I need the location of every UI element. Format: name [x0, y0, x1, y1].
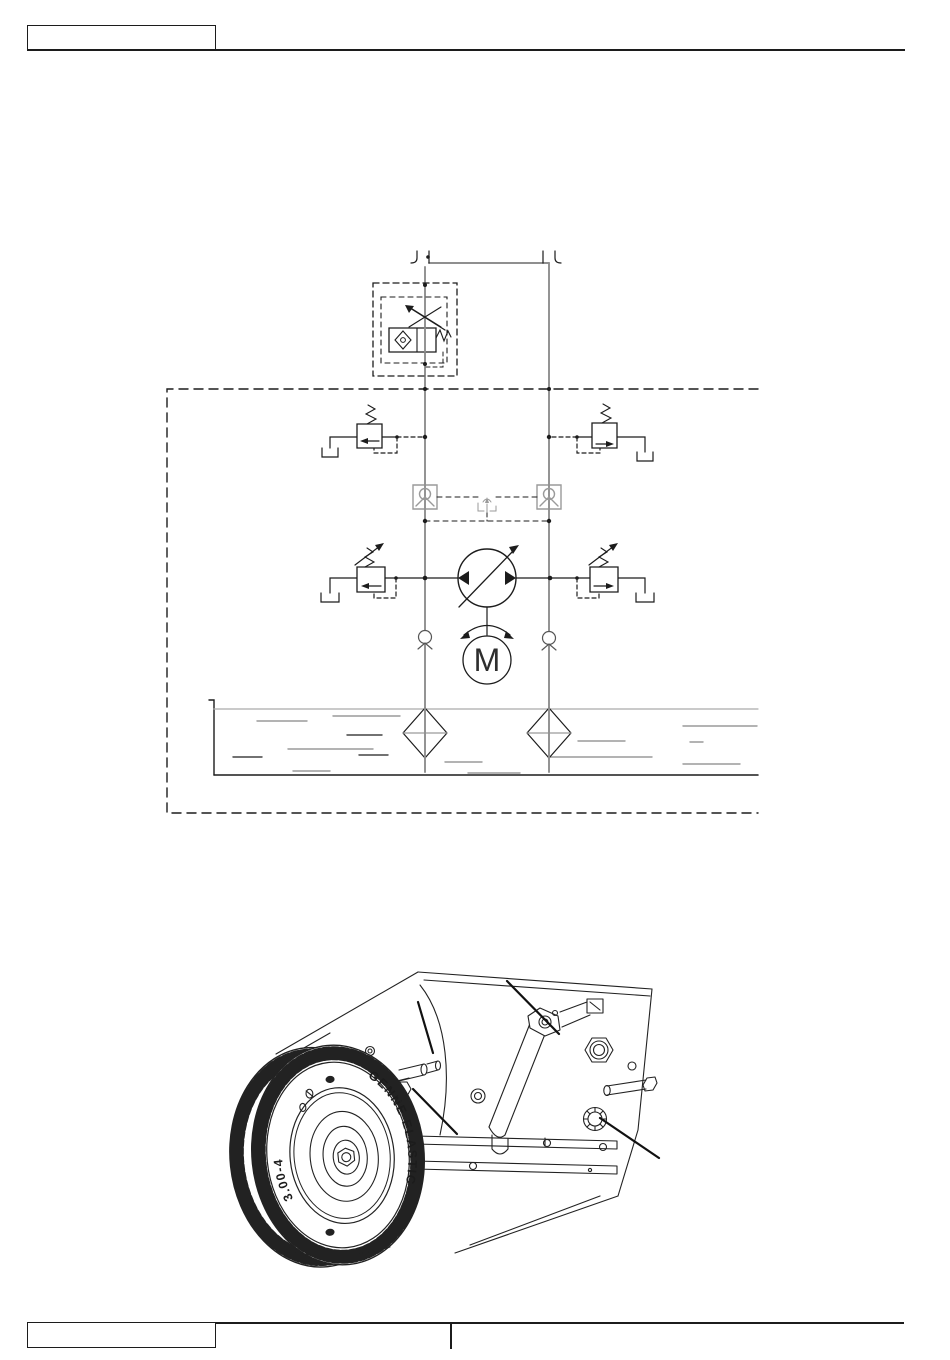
valve-body [590, 567, 618, 592]
valve-body [357, 424, 382, 448]
throttle-arrow [410, 308, 445, 330]
adjust-arrowhead [375, 543, 384, 551]
right-suction-strainer [527, 708, 571, 758]
spring-icon [601, 404, 611, 423]
manual-page: { "page": { "bg_color": "#ffffff", "line… [0, 0, 950, 1360]
junction-dot [426, 255, 430, 259]
frame-top-left-edge [276, 972, 418, 1054]
left-pilot-check-valve [413, 485, 437, 509]
panel-hole [628, 1062, 636, 1070]
right-shock-relief-valve [547, 404, 653, 461]
leader-line-1 [418, 1002, 433, 1053]
rear-wheel-illustration: GENNE ELASTIC 3.00-4 [219, 972, 659, 1276]
axle-pin [604, 1077, 657, 1096]
squeegee-bar-upper [415, 1136, 617, 1151]
right-pressure-relief-valve [577, 543, 654, 602]
junction-dot [423, 387, 427, 391]
variable-arrowhead [509, 545, 519, 554]
frame-bottom-skirt [455, 1196, 618, 1253]
squeegee-bar-lower [415, 1161, 617, 1174]
leader-line-4 [600, 1118, 659, 1158]
valve-body [357, 567, 385, 592]
tank-icon [322, 448, 338, 457]
fluid-dashes [257, 716, 757, 773]
hex-plug [585, 1038, 613, 1062]
left-suction-strainer [403, 708, 447, 758]
clevis-link-lines [560, 1002, 590, 1027]
pilot-line [426, 352, 443, 367]
sidewall-mark [326, 1229, 335, 1236]
arm-pivot-bolt [471, 1089, 485, 1103]
adjust-arrowhead [609, 543, 618, 551]
tank-icon [637, 452, 653, 461]
hydraulic-schematic: M [167, 251, 758, 813]
wheel: GENNE ELASTIC 3.00-4 [219, 1037, 435, 1276]
tank-icon [321, 593, 339, 602]
oil-reservoir [209, 700, 758, 775]
tank-icon [636, 593, 654, 602]
left-pressure-relief-valve [321, 543, 396, 602]
sidewall-mark [326, 1076, 335, 1083]
variable-displacement-pump [458, 545, 519, 635]
shuttle-valve [423, 497, 551, 523]
spring-icon [366, 405, 376, 424]
junction-dot [547, 387, 551, 391]
right-pilot-check-valve [537, 485, 561, 509]
lift-arm [471, 999, 603, 1154]
clevis-plate [528, 1008, 560, 1036]
tank-wall [209, 700, 214, 775]
page-drawings: M [0, 0, 950, 1360]
line-coupling-right-icon [543, 251, 561, 263]
frame-top-edge [418, 972, 652, 989]
towing-bypass-valve [373, 283, 457, 376]
spring-icon [436, 330, 451, 341]
motor-letter: M [474, 642, 501, 678]
fluid-dashes-dark [233, 735, 388, 757]
left-shock-relief-valve [322, 405, 427, 457]
panel-edge-behind-wheel [420, 985, 446, 1135]
transmission-boundary [167, 389, 758, 813]
